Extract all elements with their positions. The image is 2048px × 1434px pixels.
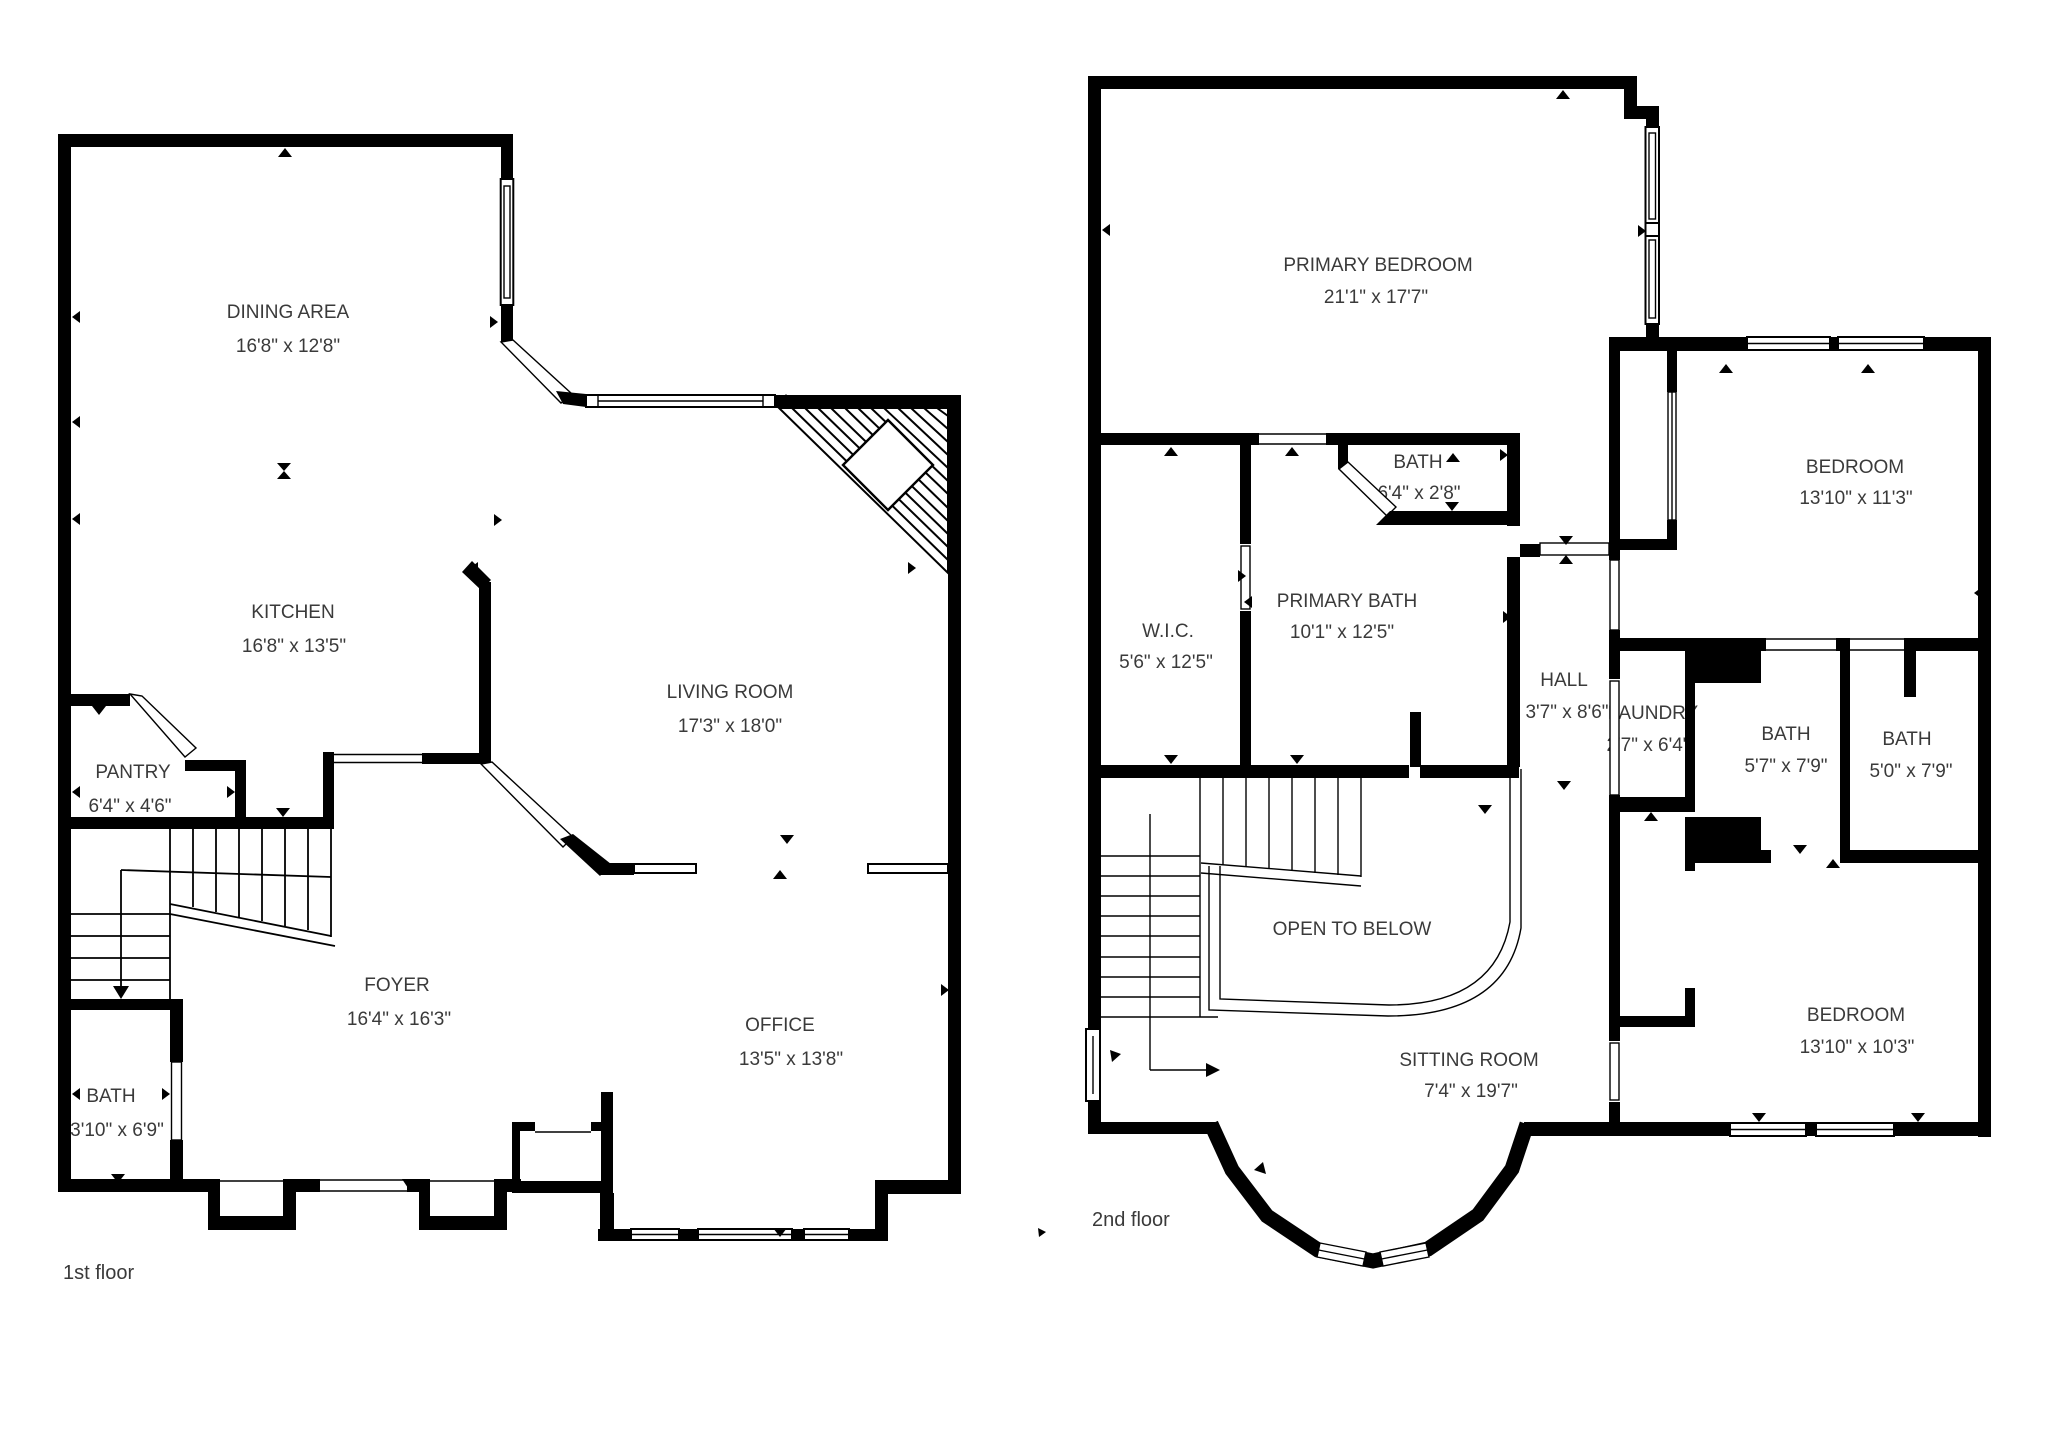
svg-text:BATH: BATH [86, 1086, 135, 1107]
svg-text:5'6" x 12'5": 5'6" x 12'5" [1119, 652, 1213, 673]
svg-text:BATH: BATH [1393, 452, 1442, 473]
svg-text:5'0" x 7'9": 5'0" x 7'9" [1869, 761, 1952, 782]
svg-text:BEDROOM: BEDROOM [1806, 457, 1904, 478]
svg-text:3'7" x 8'6": 3'7" x 8'6" [1525, 702, 1608, 723]
svg-text:PRIMARY BEDROOM: PRIMARY BEDROOM [1283, 255, 1472, 276]
svg-text:7'4" x 19'7": 7'4" x 19'7" [1424, 1081, 1518, 1102]
svg-text:LAUNDRY: LAUNDRY [1608, 703, 1699, 724]
svg-text:1st floor: 1st floor [63, 1262, 134, 1284]
svg-text:PANTRY: PANTRY [95, 762, 171, 783]
svg-text:6'4" x 4'6": 6'4" x 4'6" [88, 796, 171, 817]
svg-text:16'8" x 13'5": 16'8" x 13'5" [242, 636, 346, 657]
svg-text:10'1" x 12'5": 10'1" x 12'5" [1290, 622, 1394, 643]
svg-text:HALL: HALL [1540, 670, 1588, 691]
svg-text:W.I.C.: W.I.C. [1142, 621, 1194, 642]
svg-text:PRIMARY BATH: PRIMARY BATH [1277, 591, 1417, 612]
svg-text:16'4" x 16'3": 16'4" x 16'3" [347, 1009, 451, 1030]
svg-text:BATH: BATH [1761, 724, 1810, 745]
svg-text:13'5" x 13'8": 13'5" x 13'8" [739, 1049, 843, 1070]
svg-text:KITCHEN: KITCHEN [251, 602, 334, 623]
svg-text:LIVING ROOM: LIVING ROOM [667, 682, 794, 703]
svg-text:BEDROOM: BEDROOM [1807, 1005, 1905, 1026]
svg-text:21'1" x 17'7": 21'1" x 17'7" [1324, 287, 1428, 308]
svg-text:OFFICE: OFFICE [745, 1015, 815, 1036]
svg-text:SITTING ROOM: SITTING ROOM [1399, 1050, 1538, 1071]
svg-text:BATH: BATH [1882, 729, 1931, 750]
svg-text:13'10" x 11'3": 13'10" x 11'3" [1799, 488, 1912, 509]
svg-text:13'10" x 10'3": 13'10" x 10'3" [1800, 1037, 1915, 1058]
svg-text:3'10" x 6'9": 3'10" x 6'9" [70, 1120, 164, 1141]
svg-text:16'8" x 12'8": 16'8" x 12'8" [236, 336, 340, 357]
svg-text:FOYER: FOYER [364, 975, 429, 996]
svg-text:5'7" x 7'9": 5'7" x 7'9" [1744, 756, 1827, 777]
svg-text:2nd floor: 2nd floor [1092, 1209, 1170, 1231]
svg-text:DINING AREA: DINING AREA [227, 302, 350, 323]
svg-text:OPEN TO BELOW: OPEN TO BELOW [1273, 919, 1432, 940]
svg-text:17'3" x 18'0": 17'3" x 18'0" [678, 716, 782, 737]
